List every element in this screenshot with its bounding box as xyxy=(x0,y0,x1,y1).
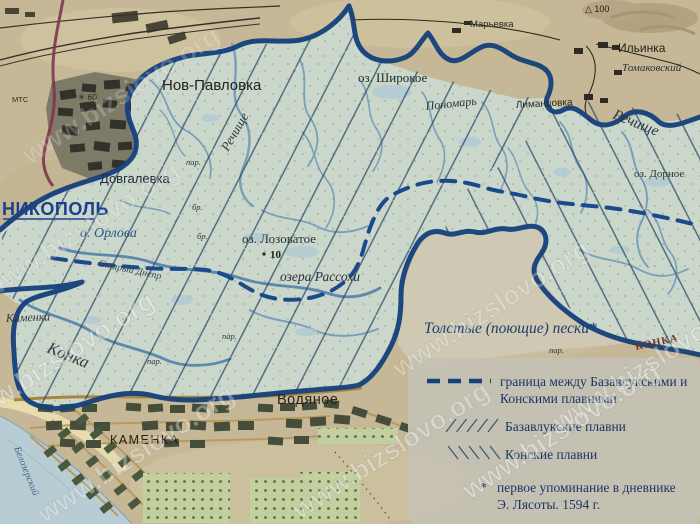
label-br-1: бр. xyxy=(192,202,203,212)
label-par-4: пар. xyxy=(549,345,564,355)
label-vodyanoe: Водяное xyxy=(277,392,338,408)
label-oz-shirokoe: оз. Широкое xyxy=(358,70,428,85)
label-marevka: Марьевка xyxy=(470,19,514,30)
label-ozera-rassokhi: озера Рассохи xyxy=(280,269,360,284)
label-par-3: пар. xyxy=(147,356,162,366)
legend-footnote-line1: первое упоминание в дневнике xyxy=(497,480,676,495)
label-tomakovsky: Томаковский xyxy=(622,62,682,74)
label-oz-lozovatoe: оз. Лозоватое xyxy=(242,231,316,246)
legend-footnote-line2: Э. Лясоты. 1594 г. xyxy=(497,497,600,512)
historical-map-screenshot: НИКОПОЛЬ о. Орлова Довгалевка Нов-Павлов… xyxy=(0,0,700,524)
label-par-1: пар. xyxy=(186,157,201,167)
label-kamenka-river: Каменка xyxy=(5,309,51,325)
label-depth-10: 10 xyxy=(270,249,282,261)
label-oz-dornoe: оз. Дорное xyxy=(634,168,684,180)
depth-dot xyxy=(262,252,265,255)
label-ilinka: Ильинка xyxy=(618,41,666,55)
label-br-2: бр. xyxy=(197,231,208,241)
label-mts: МТС xyxy=(12,95,29,104)
label-nov-pavlovka: Нов-Павловка xyxy=(162,77,262,94)
label-height-100: △ 100 xyxy=(585,4,609,14)
map-svg: НИКОПОЛЬ о. Орлова Довгалевка Нов-Павлов… xyxy=(0,0,700,524)
label-par-2: пар. xyxy=(222,331,237,341)
